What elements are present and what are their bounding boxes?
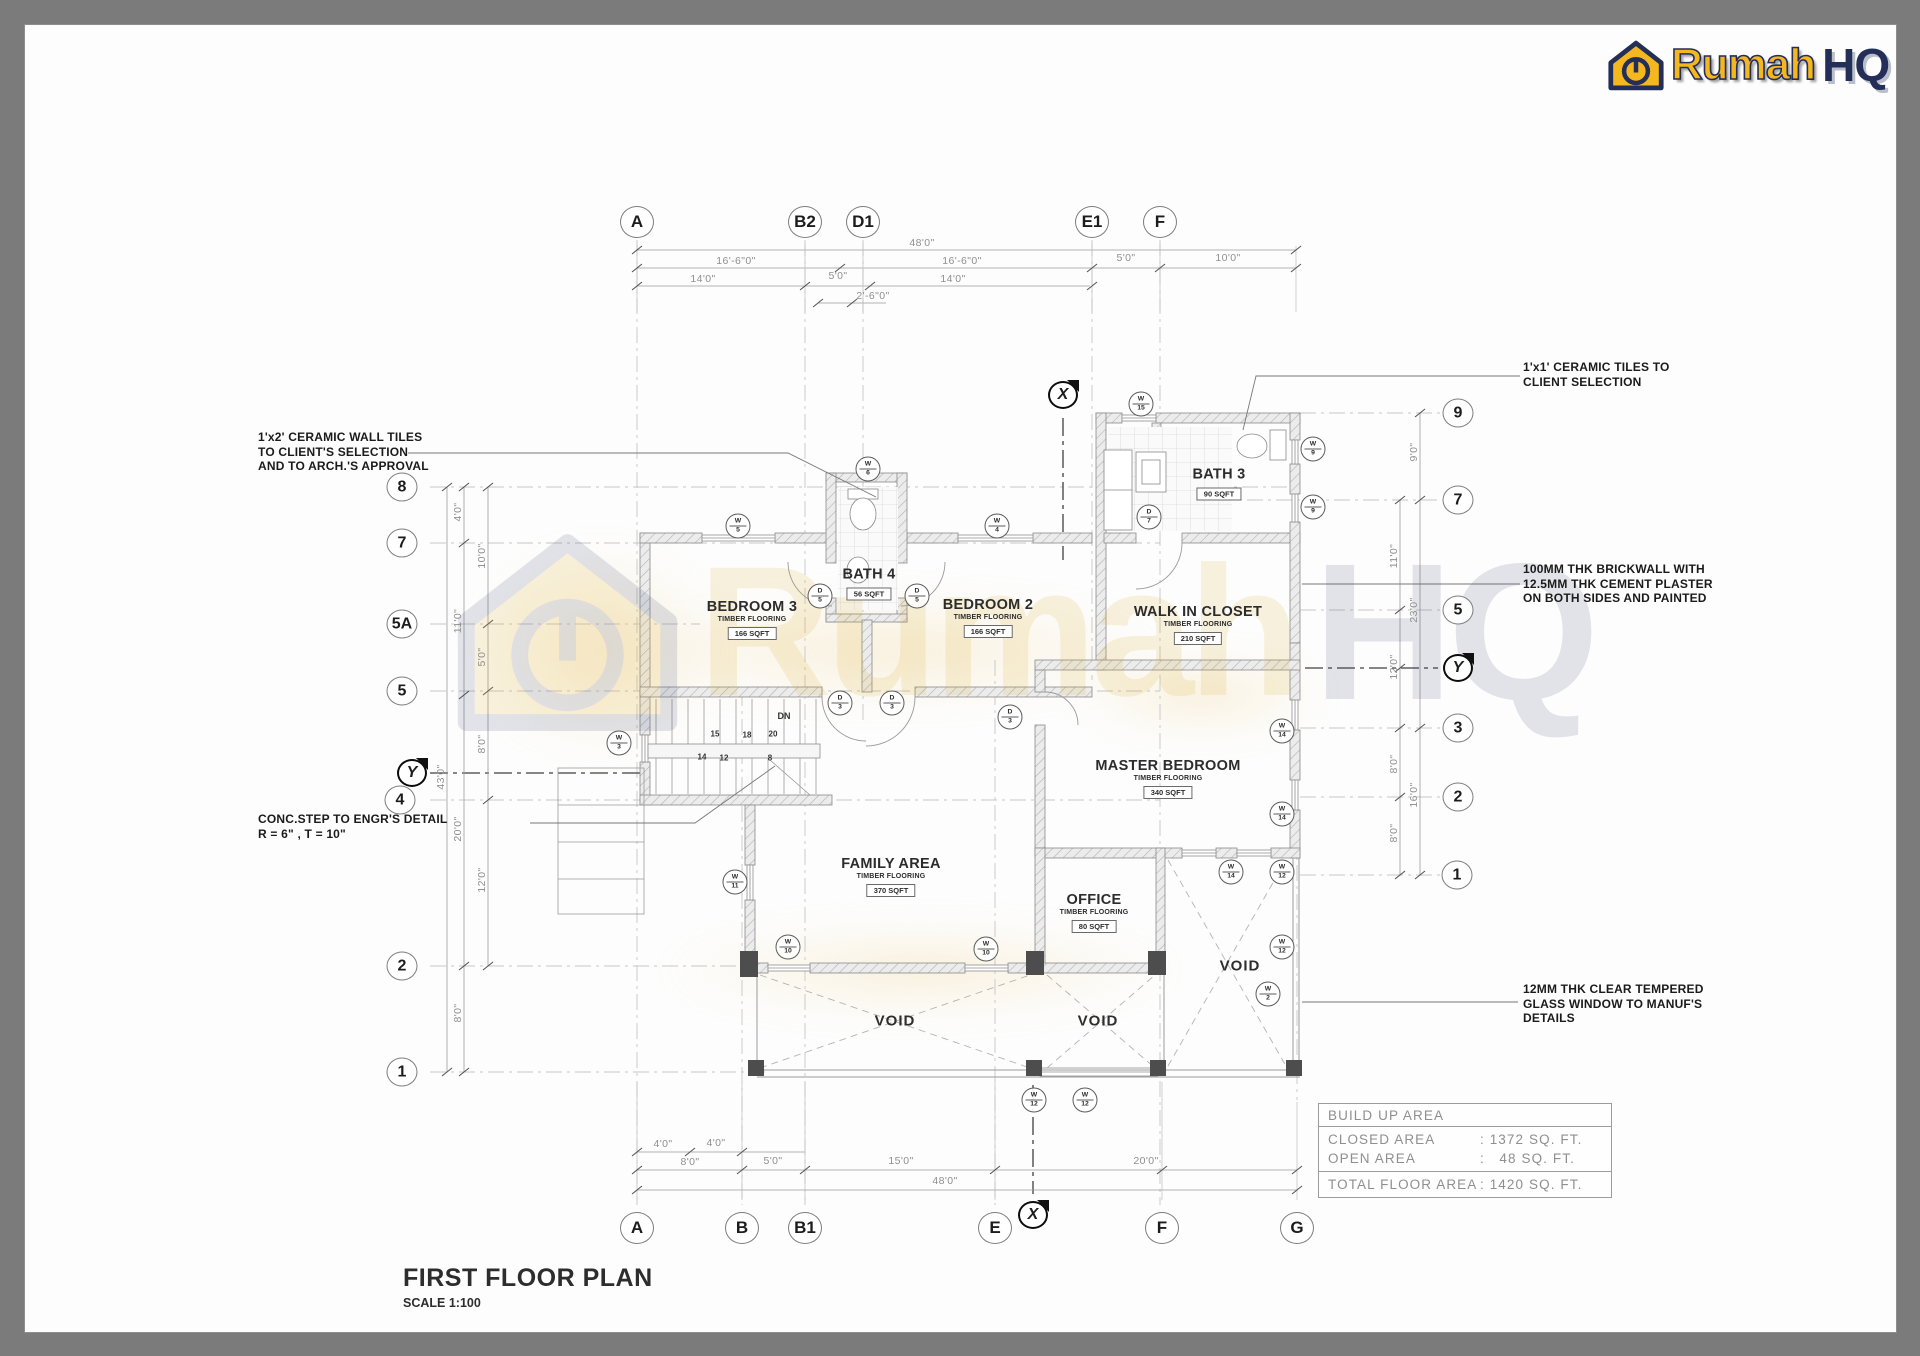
dimension-label: 8'0" bbox=[452, 1003, 464, 1022]
dimension-label: 12'0" bbox=[1388, 654, 1400, 679]
dimension-label: 4'0" bbox=[452, 502, 464, 521]
annotation-note: 1'x2' CERAMIC WALL TILES TO CLIENT'S SEL… bbox=[258, 430, 429, 474]
area-table-row: CLOSED AREA : 1372 SQ. FT. bbox=[1319, 1130, 1611, 1149]
opening-tag: W 6 bbox=[856, 457, 881, 482]
grid-bubble: 4 bbox=[385, 786, 416, 815]
stair-number: 15 bbox=[711, 730, 720, 739]
opening-tag: D 5 bbox=[905, 584, 930, 609]
stair-number: 20 bbox=[769, 730, 778, 739]
grid-bubble: 1 bbox=[1442, 861, 1473, 890]
room-label: BATH 3 90 SQFT bbox=[1192, 467, 1245, 502]
grid-bubble: 7 bbox=[1443, 486, 1474, 515]
grid-bubble: 8 bbox=[387, 473, 418, 502]
dimension-label: 23'0" bbox=[1408, 597, 1420, 622]
room-label: BEDROOM 3 TIMBER FLOORING 166 SQFT bbox=[707, 599, 798, 641]
grid-bubble: 9 bbox=[1443, 399, 1474, 428]
opening-tag: W 9 bbox=[1301, 437, 1326, 462]
area-table-total-row: TOTAL FLOOR AREA : 1420 SQ. FT. bbox=[1319, 1172, 1611, 1197]
dimension-label: 10'0" bbox=[476, 543, 488, 568]
grid-bubble: 5A bbox=[387, 610, 418, 639]
room-label: OFFICE TIMBER FLOORING 80 SQFT bbox=[1060, 892, 1129, 934]
annotation-note: 100MM THK BRICKWALL WITH 12.5MM THK CEME… bbox=[1523, 562, 1713, 606]
area-table-header: BUILD UP AREA bbox=[1319, 1104, 1611, 1127]
section-marker: X bbox=[1018, 1201, 1048, 1229]
dimension-label: 48'0" bbox=[909, 237, 934, 249]
stair-number: 8 bbox=[768, 754, 772, 763]
section-marker: Y bbox=[397, 759, 427, 787]
opening-tag: W 14 bbox=[1270, 719, 1295, 744]
dimension-label: 11'0" bbox=[452, 609, 464, 633]
opening-tag: W 11 bbox=[723, 870, 748, 895]
dimension-label: 15'0" bbox=[888, 1155, 913, 1167]
dimension-label: 2'-6"0" bbox=[856, 290, 889, 302]
grid-bubble: B bbox=[725, 1212, 759, 1244]
opening-tag: W 2 bbox=[1256, 982, 1281, 1007]
dimension-label: 8'0" bbox=[476, 734, 488, 753]
room-label: BATH 4 56 SQFT bbox=[842, 567, 895, 602]
dimension-label: 11'0" bbox=[1388, 544, 1400, 568]
annotation-note: 12MM THK CLEAR TEMPERED GLASS WINDOW TO … bbox=[1523, 982, 1704, 1026]
grid-bubble: B1 bbox=[788, 1212, 822, 1244]
dimension-label: 8'0" bbox=[680, 1156, 699, 1168]
area-table-body: CLOSED AREA : 1372 SQ. FT. OPEN AREA : 4… bbox=[1319, 1127, 1611, 1172]
dimension-label: 4'0" bbox=[653, 1138, 672, 1150]
room-label: BEDROOM 2 TIMBER FLOORING 166 SQFT bbox=[943, 597, 1034, 639]
dimension-label: 9'0" bbox=[1408, 442, 1420, 461]
plan-linework bbox=[0, 0, 1920, 1356]
dimension-label: 48'0" bbox=[932, 1175, 957, 1187]
grid-bubble: 7 bbox=[387, 529, 418, 558]
annotation-note: 1'x1' CERAMIC TILES TO CLIENT SELECTION bbox=[1523, 360, 1670, 389]
grid-bubble: 1 bbox=[387, 1058, 418, 1087]
dimension-label: 10'0" bbox=[1215, 252, 1240, 264]
dimension-label: 16'0" bbox=[1408, 782, 1420, 807]
dimension-label: 5'0" bbox=[828, 270, 847, 282]
void-label: VOID bbox=[1078, 1013, 1119, 1030]
grid-bubble: G bbox=[1280, 1212, 1314, 1244]
dimension-label: 8'0" bbox=[1388, 754, 1400, 773]
dimension-label: 5'0" bbox=[1116, 252, 1135, 264]
build-up-area-table: BUILD UP AREA CLOSED AREA : 1372 SQ. FT.… bbox=[1318, 1103, 1612, 1198]
opening-tag: W 10 bbox=[776, 935, 801, 960]
room-label: FAMILY AREA TIMBER FLOORING 370 SQFT bbox=[841, 856, 940, 898]
grid-bubble: B2 bbox=[788, 206, 822, 238]
drawing-scale: SCALE 1:100 bbox=[403, 1296, 653, 1310]
dimension-label: 5'0" bbox=[763, 1155, 782, 1167]
room-label: MASTER BEDROOM TIMBER FLOORING 340 SQFT bbox=[1095, 758, 1240, 800]
dimension-label: 20'0" bbox=[452, 816, 464, 841]
opening-tag: W 12 bbox=[1073, 1088, 1098, 1113]
opening-tag: W 5 bbox=[726, 514, 751, 539]
stair-number: 12 bbox=[720, 754, 729, 763]
dimension-label: 16'-6"0" bbox=[942, 255, 982, 267]
opening-tag: W 4 bbox=[985, 514, 1010, 539]
dimension-label: 12'0" bbox=[476, 867, 488, 892]
dimension-label: 8'0" bbox=[1388, 823, 1400, 842]
stair-number: DN bbox=[778, 711, 791, 721]
grid-bubble: E1 bbox=[1075, 206, 1109, 238]
opening-tag: D 7 bbox=[1137, 505, 1162, 530]
opening-tag: D 5 bbox=[808, 584, 833, 609]
drawing-title: FIRST FLOOR PLAN bbox=[403, 1264, 653, 1293]
grid-bubble: F bbox=[1145, 1212, 1179, 1244]
void-label: VOID bbox=[1220, 958, 1261, 975]
logo-house-icon bbox=[1608, 40, 1664, 91]
dimension-label: 5'0" bbox=[476, 647, 488, 666]
grid-bubble: 3 bbox=[1443, 714, 1474, 743]
area-table-row: OPEN AREA : 48 SQ. FT. bbox=[1319, 1149, 1611, 1168]
brand-logo: Rumah HQ bbox=[1608, 38, 1889, 92]
dimension-label: 14'0" bbox=[940, 273, 965, 285]
section-marker: X bbox=[1048, 381, 1078, 409]
opening-tag: W 12 bbox=[1270, 935, 1295, 960]
opening-tag: W 14 bbox=[1219, 860, 1244, 885]
grid-bubble: 5 bbox=[1443, 596, 1474, 625]
page: Rumah HQ Rumah HQ FIRST FLOOR PLAN SCALE… bbox=[0, 0, 1920, 1356]
stair-number: 18 bbox=[743, 731, 752, 740]
section-marker: Y bbox=[1443, 654, 1473, 682]
logo-hq-text: HQ bbox=[1822, 38, 1889, 92]
opening-tag: D 3 bbox=[880, 691, 905, 716]
void-label: VOID bbox=[875, 1013, 916, 1030]
stair-number: 14 bbox=[698, 753, 707, 762]
opening-tag: D 3 bbox=[998, 705, 1023, 730]
grid-bubble: 2 bbox=[387, 952, 418, 981]
grid-bubble: E bbox=[978, 1212, 1012, 1244]
opening-tag: W 3 bbox=[607, 731, 632, 756]
title-block: FIRST FLOOR PLAN SCALE 1:100 bbox=[403, 1264, 653, 1310]
grid-bubble: 5 bbox=[387, 677, 418, 706]
dimension-label: 16'-6"0" bbox=[716, 255, 756, 267]
grid-bubble: F bbox=[1143, 206, 1177, 238]
opening-tag: W 9 bbox=[1301, 495, 1326, 520]
opening-tag: W 12 bbox=[1270, 860, 1295, 885]
dimension-label: 43'0" bbox=[435, 764, 447, 789]
dimension-label: 4'0" bbox=[706, 1137, 725, 1149]
opening-tag: W 14 bbox=[1270, 802, 1295, 827]
logo-rumah-text: Rumah bbox=[1671, 40, 1815, 90]
dimension-label: 14'0" bbox=[690, 273, 715, 285]
opening-tag: W 15 bbox=[1129, 392, 1154, 417]
grid-bubble: A bbox=[620, 206, 654, 238]
room-label: WALK IN CLOSET TIMBER FLOORING 210 SQFT bbox=[1134, 604, 1262, 646]
opening-tag: D 3 bbox=[828, 691, 853, 716]
opening-tag: W 10 bbox=[974, 937, 999, 962]
grid-bubble: D1 bbox=[846, 206, 880, 238]
dimension-label: 20'0" bbox=[1133, 1155, 1158, 1167]
opening-tag: W 12 bbox=[1022, 1088, 1047, 1113]
stairs bbox=[558, 699, 820, 914]
annotation-note: CONC.STEP TO ENGR'S DETAIL R = 6" , T = … bbox=[258, 812, 447, 841]
grid-bubble: A bbox=[620, 1212, 654, 1244]
grid-bubble: 2 bbox=[1443, 783, 1474, 812]
